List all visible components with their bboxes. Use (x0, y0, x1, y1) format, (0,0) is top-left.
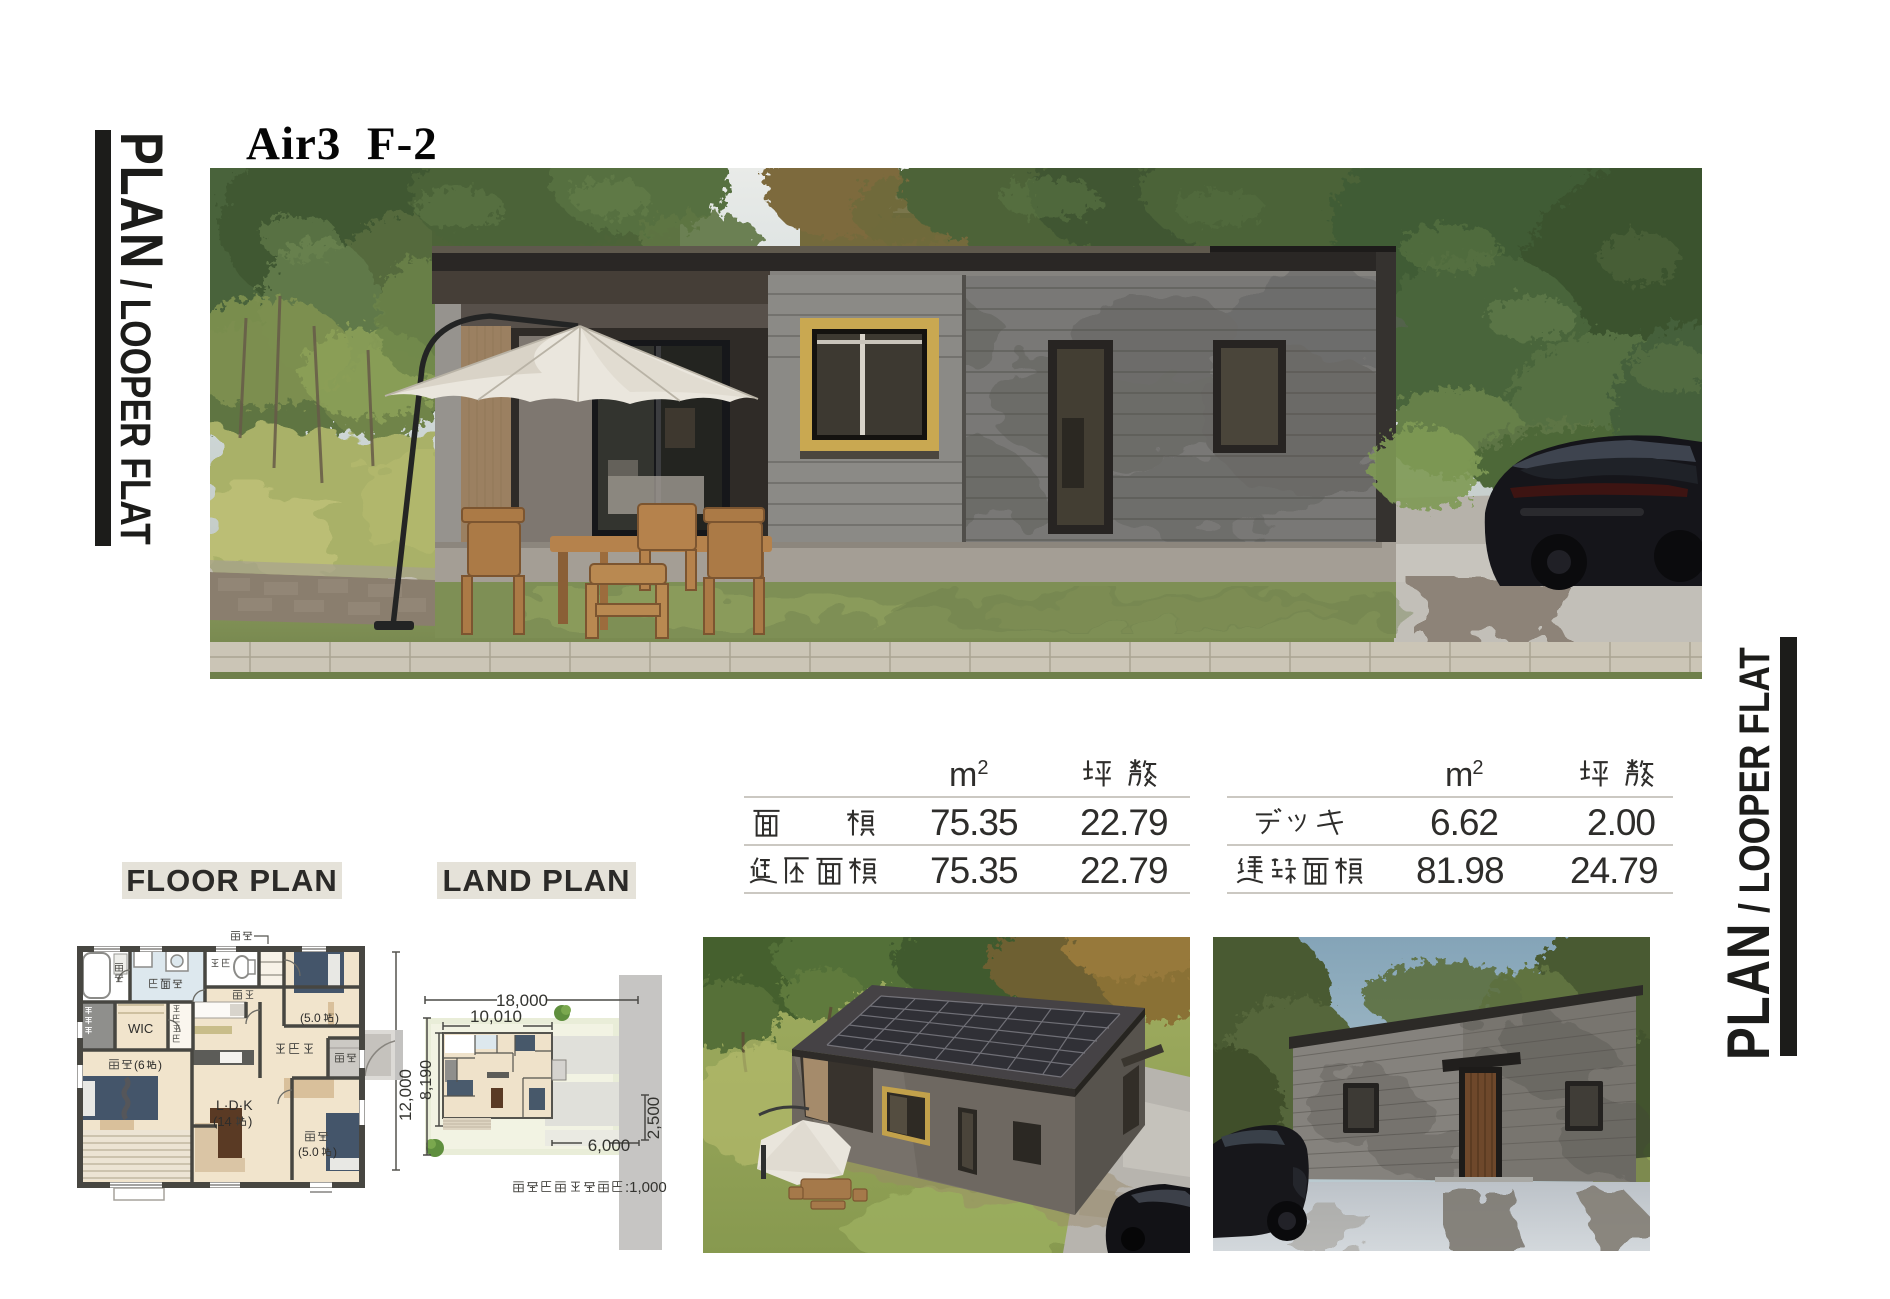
svg-text:): ) (333, 1145, 337, 1159)
svg-text:(6: (6 (134, 1058, 145, 1072)
svg-text:6,000: 6,000 (588, 1136, 631, 1155)
svg-text:): ) (248, 1114, 252, 1129)
svg-text::1,000: :1,000 (625, 1179, 667, 1196)
svg-text:): ) (335, 1011, 339, 1025)
svg-text:WIC: WIC (128, 1021, 153, 1036)
svg-text:12,000: 12,000 (396, 1069, 415, 1121)
svg-text:10,010: 10,010 (470, 1007, 522, 1026)
svg-text:(5.0: (5.0 (298, 1145, 319, 1159)
svg-text:): ) (158, 1058, 162, 1072)
svg-text:8,190: 8,190 (418, 1060, 435, 1100)
svg-text:(5.0: (5.0 (300, 1011, 321, 1025)
svg-text:2,500: 2,500 (644, 1097, 663, 1140)
svg-text:L·D·K: L·D·K (216, 1097, 253, 1113)
svg-text:(14: (14 (213, 1114, 232, 1129)
